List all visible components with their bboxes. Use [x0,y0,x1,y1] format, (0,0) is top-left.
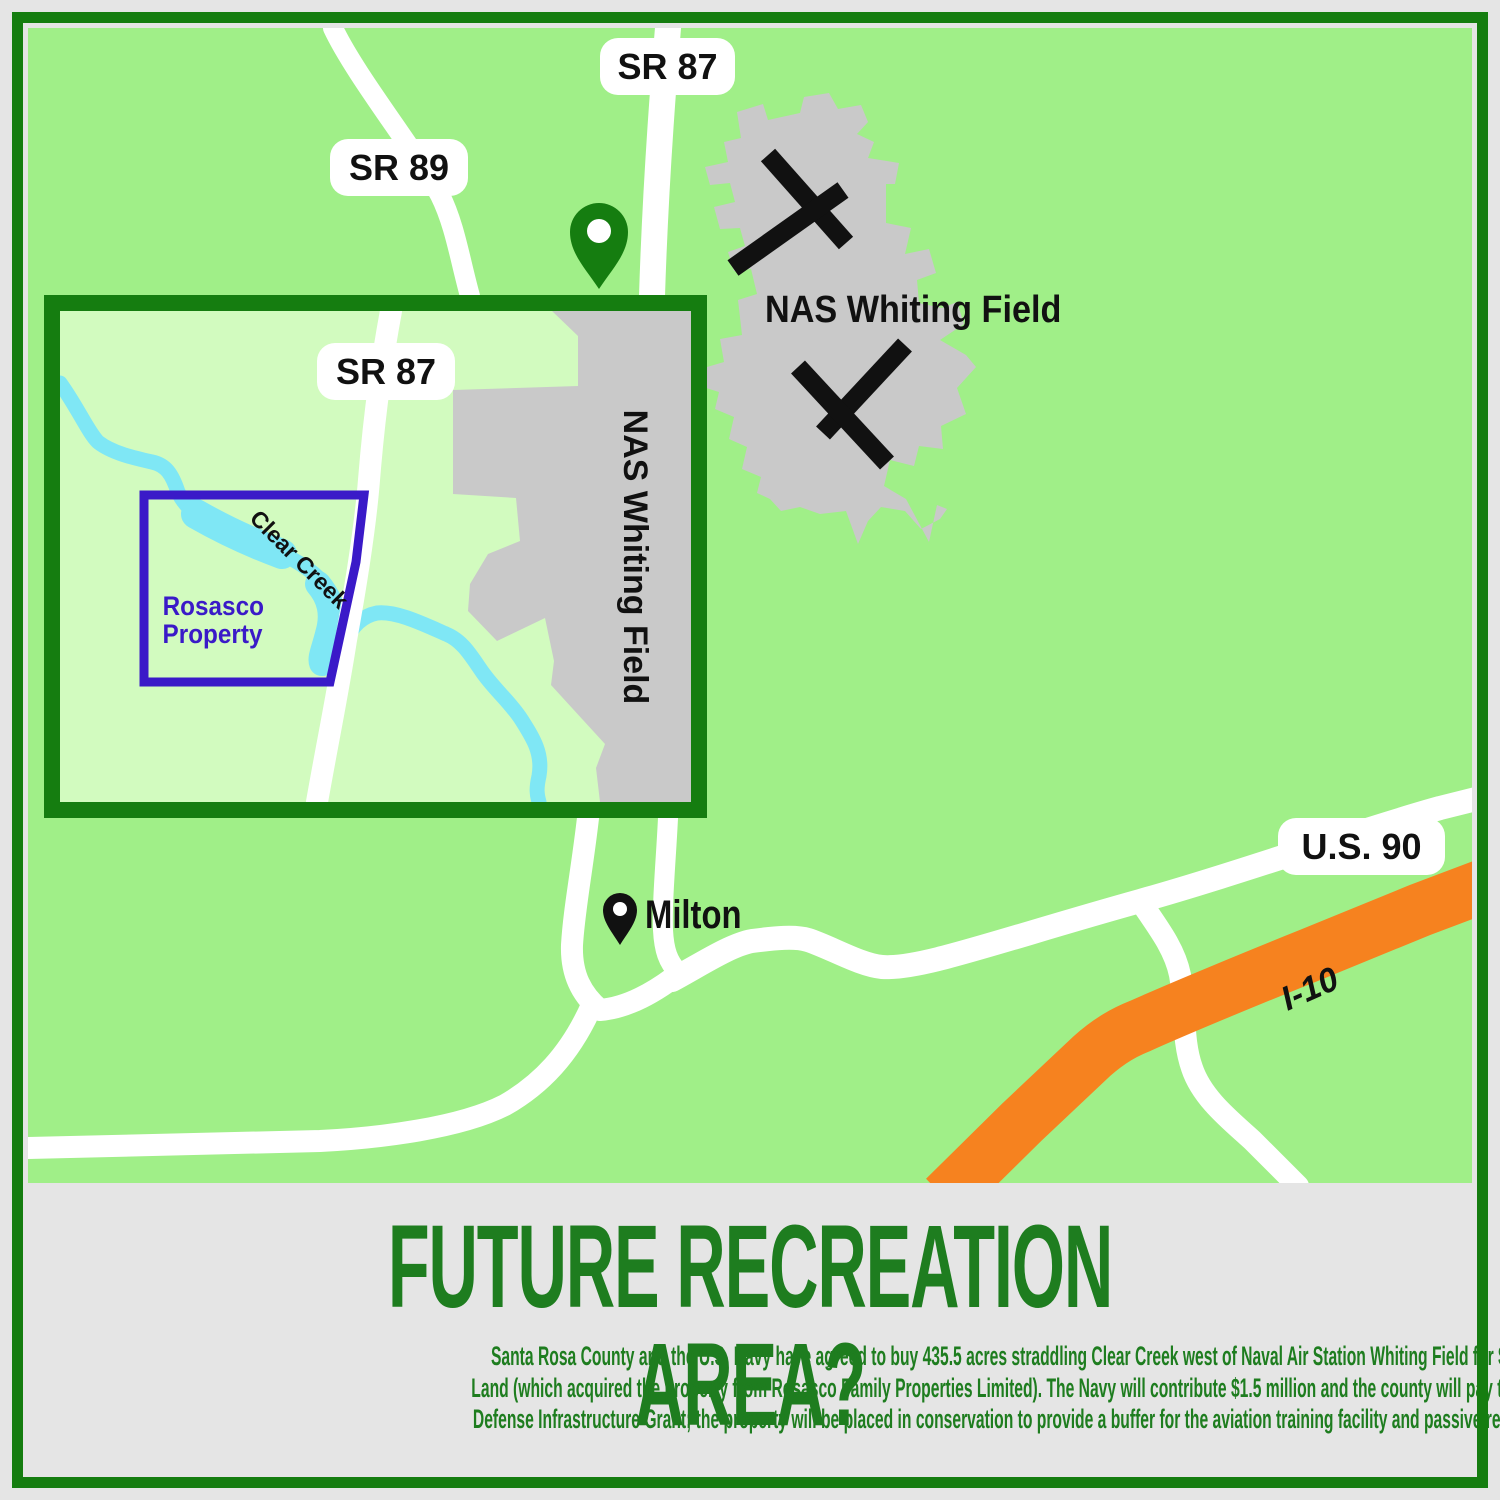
road-label-us90: U.S. 90 [1278,818,1445,875]
road-label-sr89: SR 89 [330,139,468,196]
rosasco-label-line2: Property [163,620,263,648]
road-label-sr87-north: SR 87 [600,38,735,95]
rosasco-property-label: Rosasco Property [113,592,313,648]
road-label-sr87-north-text: SR 87 [617,46,717,88]
infographic-root: SR 87 SR 89 SR 87 U.S. 90 NAS Whiting Fi… [0,0,1500,1500]
rosasco-label-line1: Rosasco [162,592,263,620]
caption-text: Santa Rosa County and the U.S. Navy have… [28,1341,1472,1436]
nas-whiting-field-label: NAS Whiting Field [765,289,1094,332]
road-label-us90-text: U.S. 90 [1301,826,1421,868]
nas-whiting-field-inset-label: NAS Whiting Field [614,392,654,722]
road-label-sr89-text: SR 89 [349,147,449,189]
milton-label: Milton [645,893,763,938]
caption-line-1: Santa Rosa County and the U.S. Navy have… [28,1341,1472,1373]
caption-line-2: Land (which acquired the property from R… [28,1373,1472,1405]
caption-line-3: Defense Infrastructure Grant; the proper… [28,1404,1472,1436]
road-label-sr87-inset-text: SR 87 [336,351,436,393]
road-label-sr87-inset: SR 87 [317,343,455,400]
